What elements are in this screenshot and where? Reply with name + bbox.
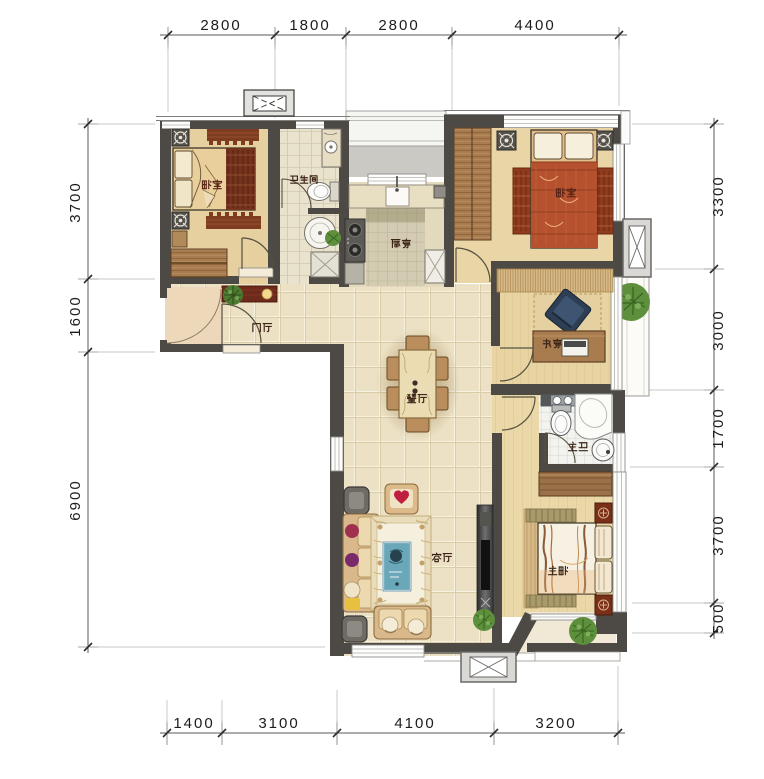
svg-text:1800: 1800 [289, 17, 330, 34]
svg-text:3700: 3700 [67, 181, 84, 222]
svg-text:2800: 2800 [378, 17, 419, 34]
svg-text:1400: 1400 [173, 715, 214, 732]
svg-text:1600: 1600 [67, 295, 84, 336]
svg-text:3200: 3200 [535, 715, 576, 732]
svg-text:3100: 3100 [258, 715, 299, 732]
svg-text:1700: 1700 [710, 407, 727, 448]
svg-text:4100: 4100 [394, 715, 435, 732]
svg-text:500: 500 [710, 602, 727, 633]
svg-text:3000: 3000 [710, 309, 727, 350]
svg-text:6900: 6900 [67, 479, 84, 520]
svg-text:2800: 2800 [200, 17, 241, 34]
svg-text:3300: 3300 [710, 175, 727, 216]
svg-text:4400: 4400 [514, 17, 555, 34]
svg-text:3700: 3700 [710, 514, 727, 555]
